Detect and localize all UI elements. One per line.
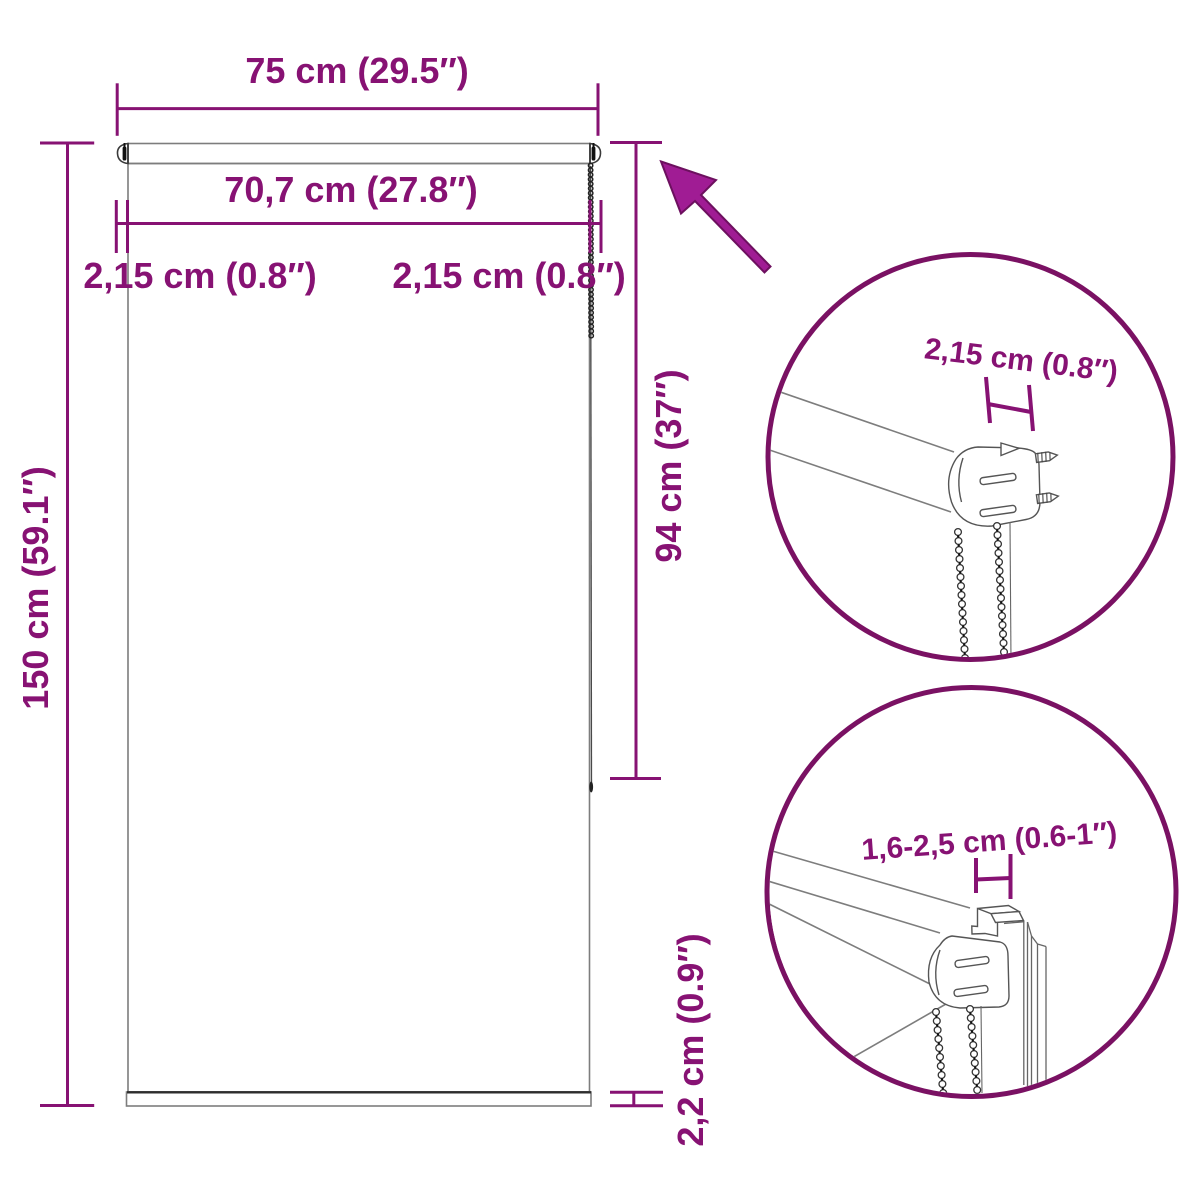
svg-text:150 cm (59.1″): 150 cm (59.1″) — [15, 466, 56, 709]
svg-text:2,2 cm (0.9″): 2,2 cm (0.9″) — [670, 933, 711, 1146]
svg-text:75 cm (29.5″): 75 cm (29.5″) — [245, 50, 468, 91]
svg-text:2,15 cm (0.8″): 2,15 cm (0.8″) — [392, 255, 625, 296]
svg-text:2,15 cm (0.8″): 2,15 cm (0.8″) — [83, 255, 316, 296]
svg-text:94 cm (37″): 94 cm (37″) — [648, 369, 689, 562]
svg-text:70,7 cm (27.8″): 70,7 cm (27.8″) — [224, 169, 477, 210]
